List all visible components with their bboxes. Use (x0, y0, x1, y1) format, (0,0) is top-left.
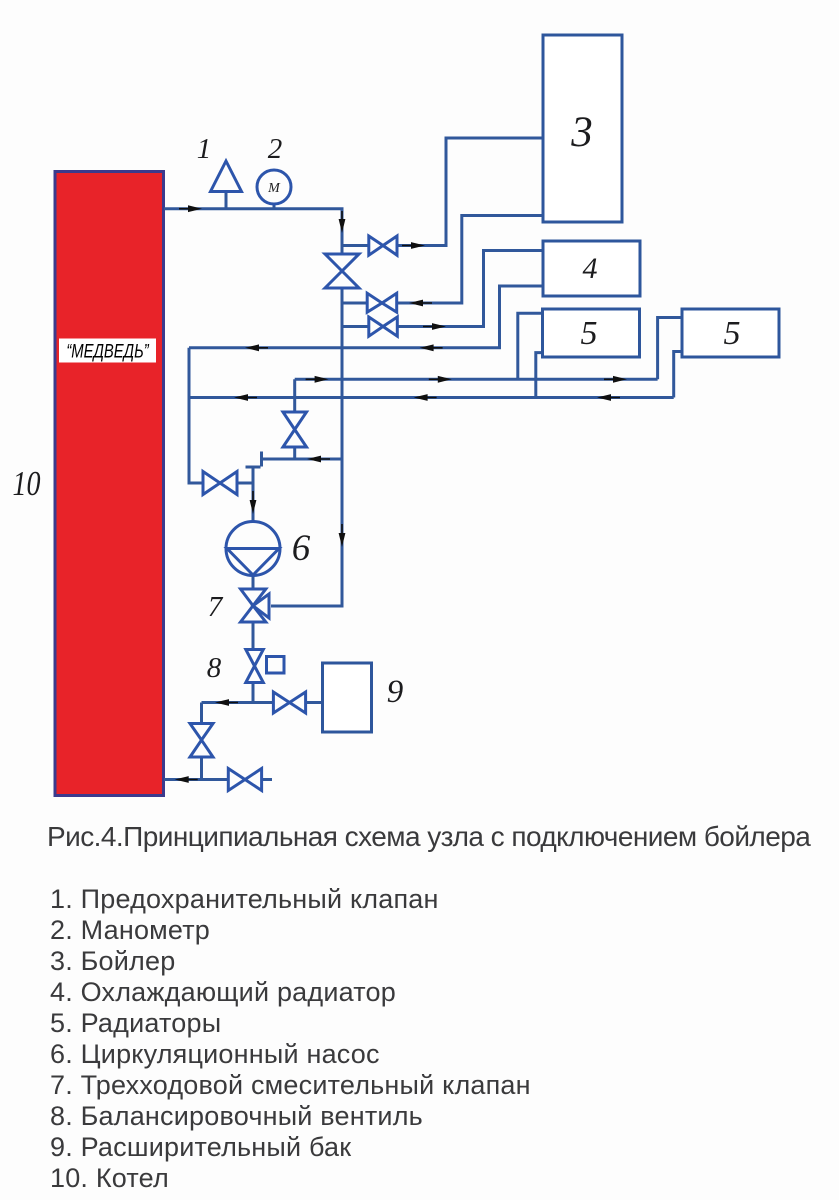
svg-text:“МЕДВЕДЬ”: “МЕДВЕДЬ” (66, 341, 149, 362)
svg-text:9: 9 (387, 674, 404, 710)
svg-text:6: 6 (292, 528, 311, 569)
svg-text:1: 1 (197, 133, 212, 165)
svg-text:8: 8 (207, 652, 222, 684)
svg-text:10: 10 (13, 464, 41, 503)
svg-text:5: 5 (724, 315, 741, 352)
svg-text:7: 7 (208, 591, 224, 623)
svg-text:3: 3 (570, 109, 593, 156)
svg-text:4: 4 (583, 252, 598, 285)
svg-text:2: 2 (268, 133, 283, 165)
svg-text:M: M (267, 181, 281, 196)
svg-text:5: 5 (581, 315, 598, 352)
